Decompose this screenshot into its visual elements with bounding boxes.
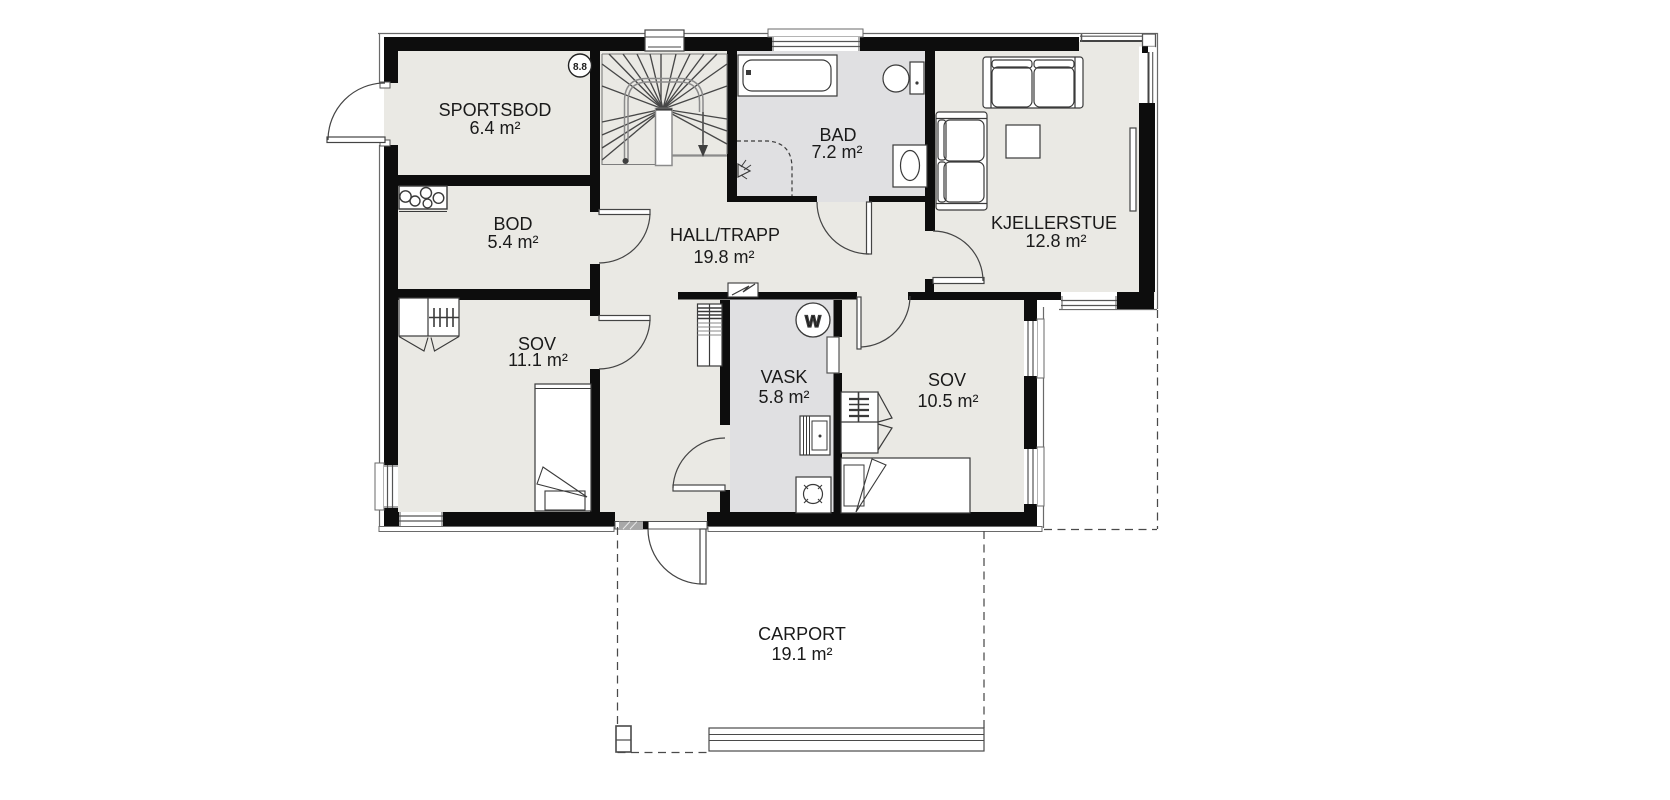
svg-text:5.4 m²: 5.4 m² [487,232,538,252]
svg-text:6.4 m²: 6.4 m² [469,118,520,138]
svg-text:CARPORT: CARPORT [758,624,846,644]
svg-text:10.5 m²: 10.5 m² [917,391,978,411]
svg-text:HALL/TRAPP: HALL/TRAPP [670,225,780,245]
svg-text:12.8 m²: 12.8 m² [1025,231,1086,251]
svg-text:11.1 m²: 11.1 m² [508,350,568,370]
svg-text:5.8 m²: 5.8 m² [758,387,809,407]
svg-text:SPORTSBOD: SPORTSBOD [439,100,552,120]
svg-text:SOV: SOV [928,370,966,390]
svg-text:19.8 m²: 19.8 m² [693,247,754,267]
svg-text:W: W [805,312,822,331]
svg-text:BOD: BOD [493,214,532,234]
svg-text:19.1 m²: 19.1 m² [771,644,832,664]
svg-text:7.2 m²: 7.2 m² [811,142,862,162]
svg-text:VASK: VASK [761,367,808,387]
svg-text:8.8: 8.8 [573,62,587,73]
svg-text:KJELLERSTUE: KJELLERSTUE [991,213,1117,233]
